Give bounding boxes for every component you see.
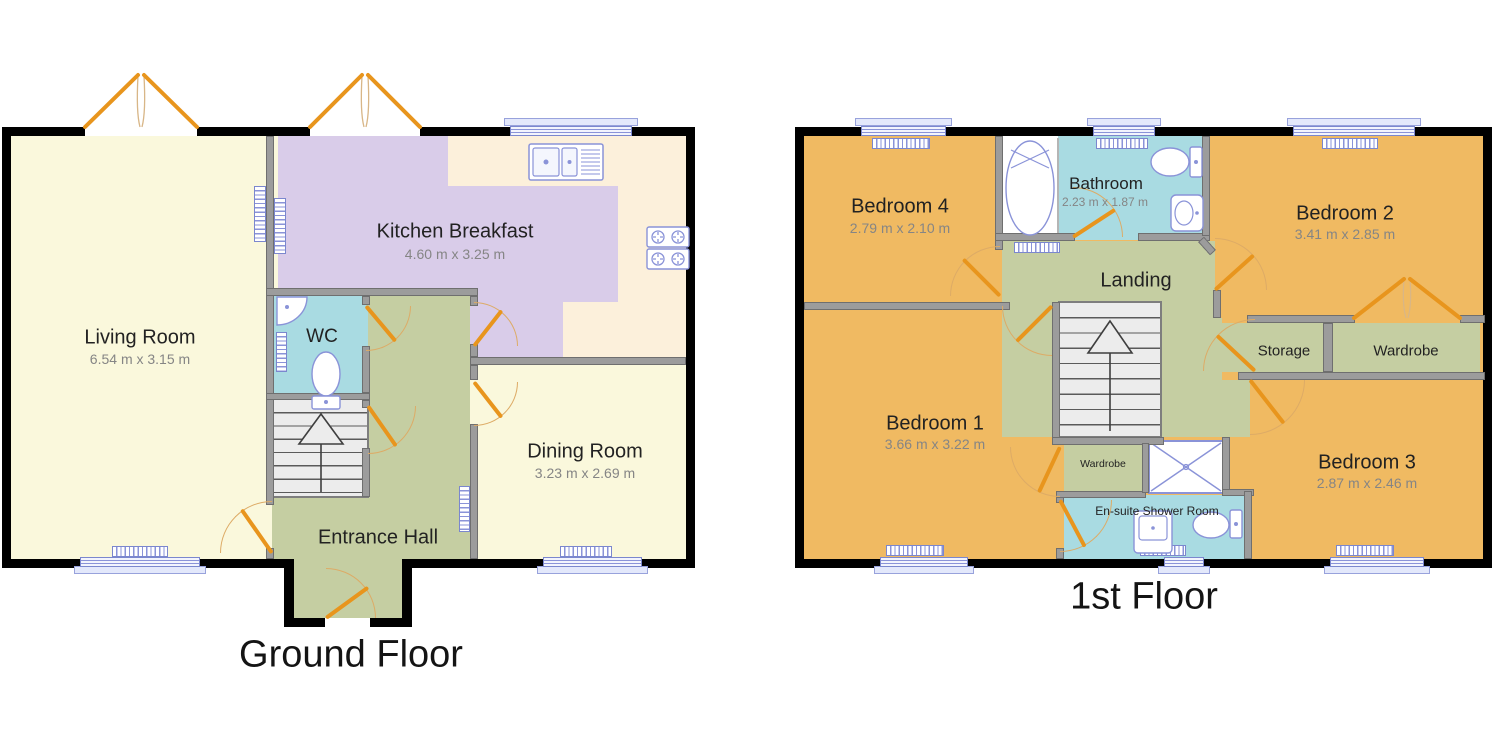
wall (1052, 302, 1060, 445)
porch-wall-bottom-left (284, 618, 325, 627)
radiator (1336, 545, 1394, 556)
french-doors-kitchen (308, 70, 422, 130)
room-label-kitchen-breakfast: Kitchen Breakfast (377, 221, 534, 244)
kitchen-sink-icon (528, 143, 604, 181)
window (861, 126, 946, 136)
radiator (1014, 242, 1060, 253)
window-sill (1087, 118, 1161, 126)
room-dims-bedroom-2: 3.41 m x 2.85 m (1295, 226, 1395, 242)
room-landing-patch2 (1222, 380, 1250, 437)
wall (1244, 491, 1252, 559)
room-label-wardrobe-small: Wardrobe (1080, 458, 1126, 470)
window (1164, 557, 1204, 567)
wall (1222, 437, 1230, 493)
wall (1323, 323, 1333, 372)
wall (362, 296, 370, 305)
radiator (276, 332, 287, 372)
room-dims-kitchen-breakfast: 4.60 m x 3.25 m (405, 246, 505, 262)
wall (1142, 443, 1149, 493)
radiator (1096, 138, 1148, 149)
window-sill (1287, 118, 1421, 126)
first-floor-title: 1st Floor (1070, 576, 1218, 619)
basin-icon (1170, 194, 1204, 232)
toilet-icon (308, 350, 344, 412)
window-sill (74, 566, 206, 574)
wall (362, 448, 370, 497)
radiator (112, 546, 168, 557)
french-doors-living (83, 70, 199, 130)
radiator (274, 198, 286, 254)
window-sill (1324, 566, 1430, 574)
room-label-bathroom: Bathroom (1069, 174, 1143, 194)
wall (362, 346, 370, 393)
room-dims-bedroom-3: 2.87 m x 2.46 m (1317, 475, 1417, 491)
ground-floor-title: Ground Floor (239, 634, 463, 677)
floorplan-canvas: Living Room 6.54 m x 3.15 m Kitchen Brea… (0, 0, 1500, 750)
room-label-bedroom-3: Bedroom 3 (1318, 452, 1416, 475)
double-doors-wardrobe (1350, 274, 1464, 320)
wall (266, 136, 274, 505)
window-sill (855, 118, 952, 126)
window (880, 557, 968, 567)
corner-basin-icon (276, 296, 310, 326)
window (543, 557, 642, 567)
room-label-bedroom-2: Bedroom 2 (1296, 203, 1394, 226)
radiator (560, 546, 612, 557)
window-sill (504, 118, 638, 126)
wall (804, 302, 1010, 310)
window-sill (1158, 566, 1210, 574)
stairs-up-arrow-icon (269, 398, 369, 498)
wall (1213, 290, 1221, 318)
toilet-icon (1148, 144, 1204, 180)
window (80, 557, 200, 567)
window-sill (874, 566, 974, 574)
wall (266, 288, 478, 296)
shower-x-icon (1148, 440, 1224, 494)
room-label-en-suite: En-suite Shower Room (1095, 504, 1218, 518)
room-label-living-room: Living Room (84, 327, 195, 350)
room-dims-bedroom-1: 3.66 m x 3.22 m (885, 436, 985, 452)
room-dims-bathroom: 2.23 m x 1.87 m (1062, 195, 1148, 209)
radiator (872, 138, 930, 149)
room-label-dining-room: Dining Room (527, 441, 643, 464)
stairs-up-arrow-icon (1058, 301, 1162, 438)
bathtub-icon (1003, 138, 1057, 238)
porch-wall-bottom-right (370, 618, 412, 627)
window (1330, 557, 1424, 567)
wall (1057, 138, 1059, 238)
radiator (254, 186, 266, 242)
room-label-storage: Storage (1258, 343, 1311, 360)
window (510, 126, 632, 136)
porch-wall-right (402, 559, 412, 627)
radiator (1322, 138, 1378, 149)
room-dims-bedroom-4: 2.79 m x 2.10 m (850, 220, 950, 236)
room-dims-dining-room: 3.23 m x 2.69 m (535, 465, 635, 481)
room-label-landing: Landing (1100, 270, 1171, 293)
radiator (886, 545, 944, 556)
wall (1247, 315, 1355, 323)
porch-wall-left (284, 559, 294, 627)
wall (470, 424, 478, 559)
wall (1056, 491, 1146, 498)
radiator (459, 486, 470, 532)
room-label-wc: WC (306, 326, 338, 348)
room-label-wardrobe: Wardrobe (1373, 343, 1438, 360)
room-label-bedroom-4: Bedroom 4 (851, 196, 949, 219)
room-dims-living-room: 6.54 m x 3.15 m (90, 351, 190, 367)
kitchen-counter-bottom (563, 302, 686, 359)
window-sill (537, 566, 648, 574)
room-label-entrance-hall: Entrance Hall (318, 527, 438, 550)
wall (470, 357, 686, 365)
hob-icon (646, 226, 690, 270)
wall (1238, 372, 1485, 380)
room-label-bedroom-1: Bedroom 1 (886, 413, 984, 436)
window (1293, 126, 1415, 136)
wall (470, 365, 478, 380)
window (1093, 126, 1155, 136)
